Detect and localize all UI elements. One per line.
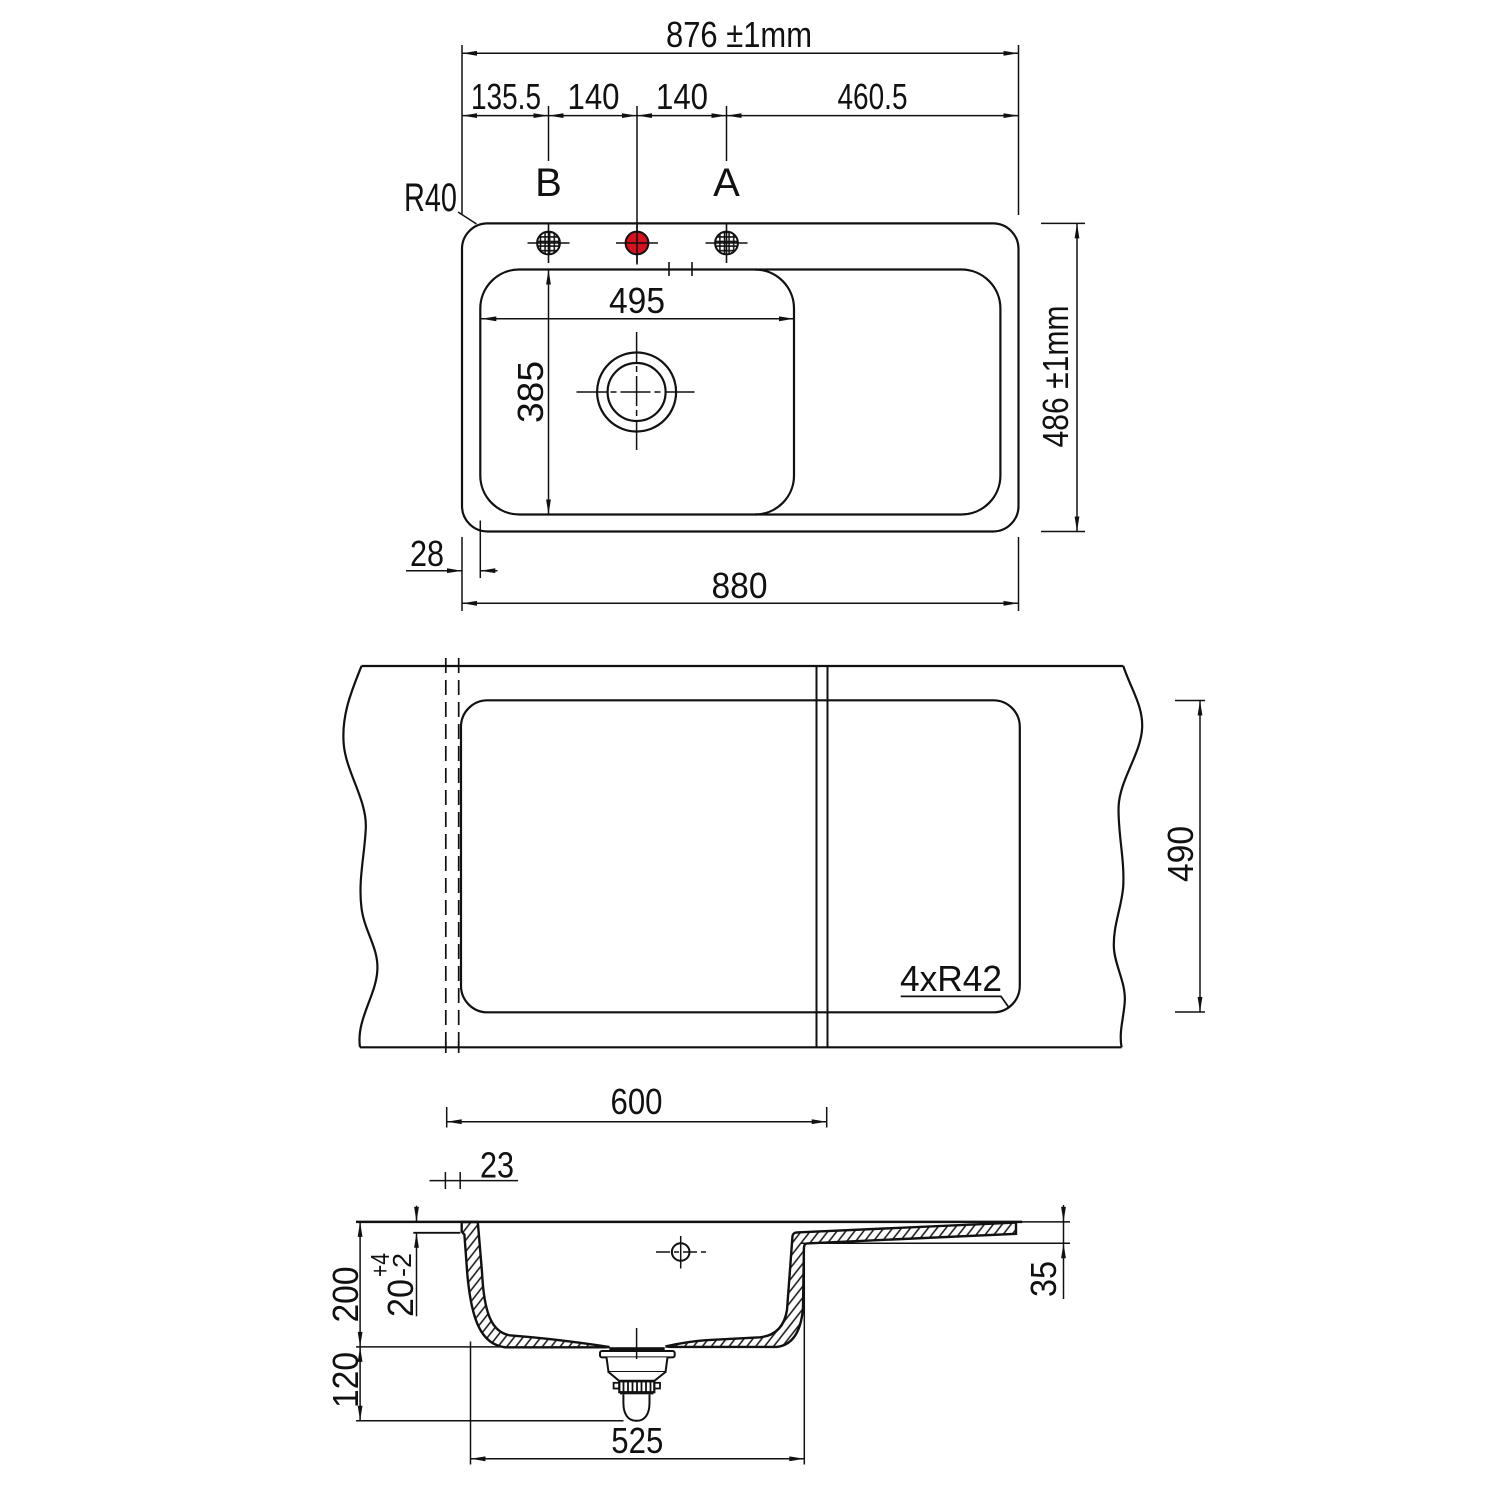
svg-text:R40: R40 (404, 176, 457, 220)
svg-text:23: 23 (480, 1145, 514, 1186)
svg-text:460.5: 460.5 (838, 76, 908, 117)
svg-text:140: 140 (656, 76, 708, 117)
svg-text:28: 28 (410, 533, 444, 574)
svg-text:-2: -2 (387, 1253, 417, 1277)
svg-text:495: 495 (609, 280, 665, 321)
svg-text:880: 880 (712, 565, 768, 606)
svg-text:35: 35 (1023, 1261, 1064, 1297)
svg-text:140: 140 (568, 76, 620, 117)
svg-text:120: 120 (325, 1352, 366, 1408)
svg-text:B: B (535, 161, 562, 205)
svg-text:4xR42: 4xR42 (900, 958, 1002, 999)
svg-text:385: 385 (510, 361, 551, 423)
svg-text:525: 525 (611, 1420, 663, 1461)
svg-text:600: 600 (611, 1081, 663, 1122)
svg-text:20: 20 (380, 1279, 421, 1317)
svg-text:876 ±1mm: 876 ±1mm (666, 14, 812, 55)
svg-text:490: 490 (1160, 826, 1201, 882)
svg-text:135.5: 135.5 (471, 76, 541, 117)
svg-text:A: A (713, 161, 740, 205)
svg-text:200: 200 (325, 1267, 366, 1323)
svg-text:486 ±1mm: 486 ±1mm (1035, 306, 1076, 448)
